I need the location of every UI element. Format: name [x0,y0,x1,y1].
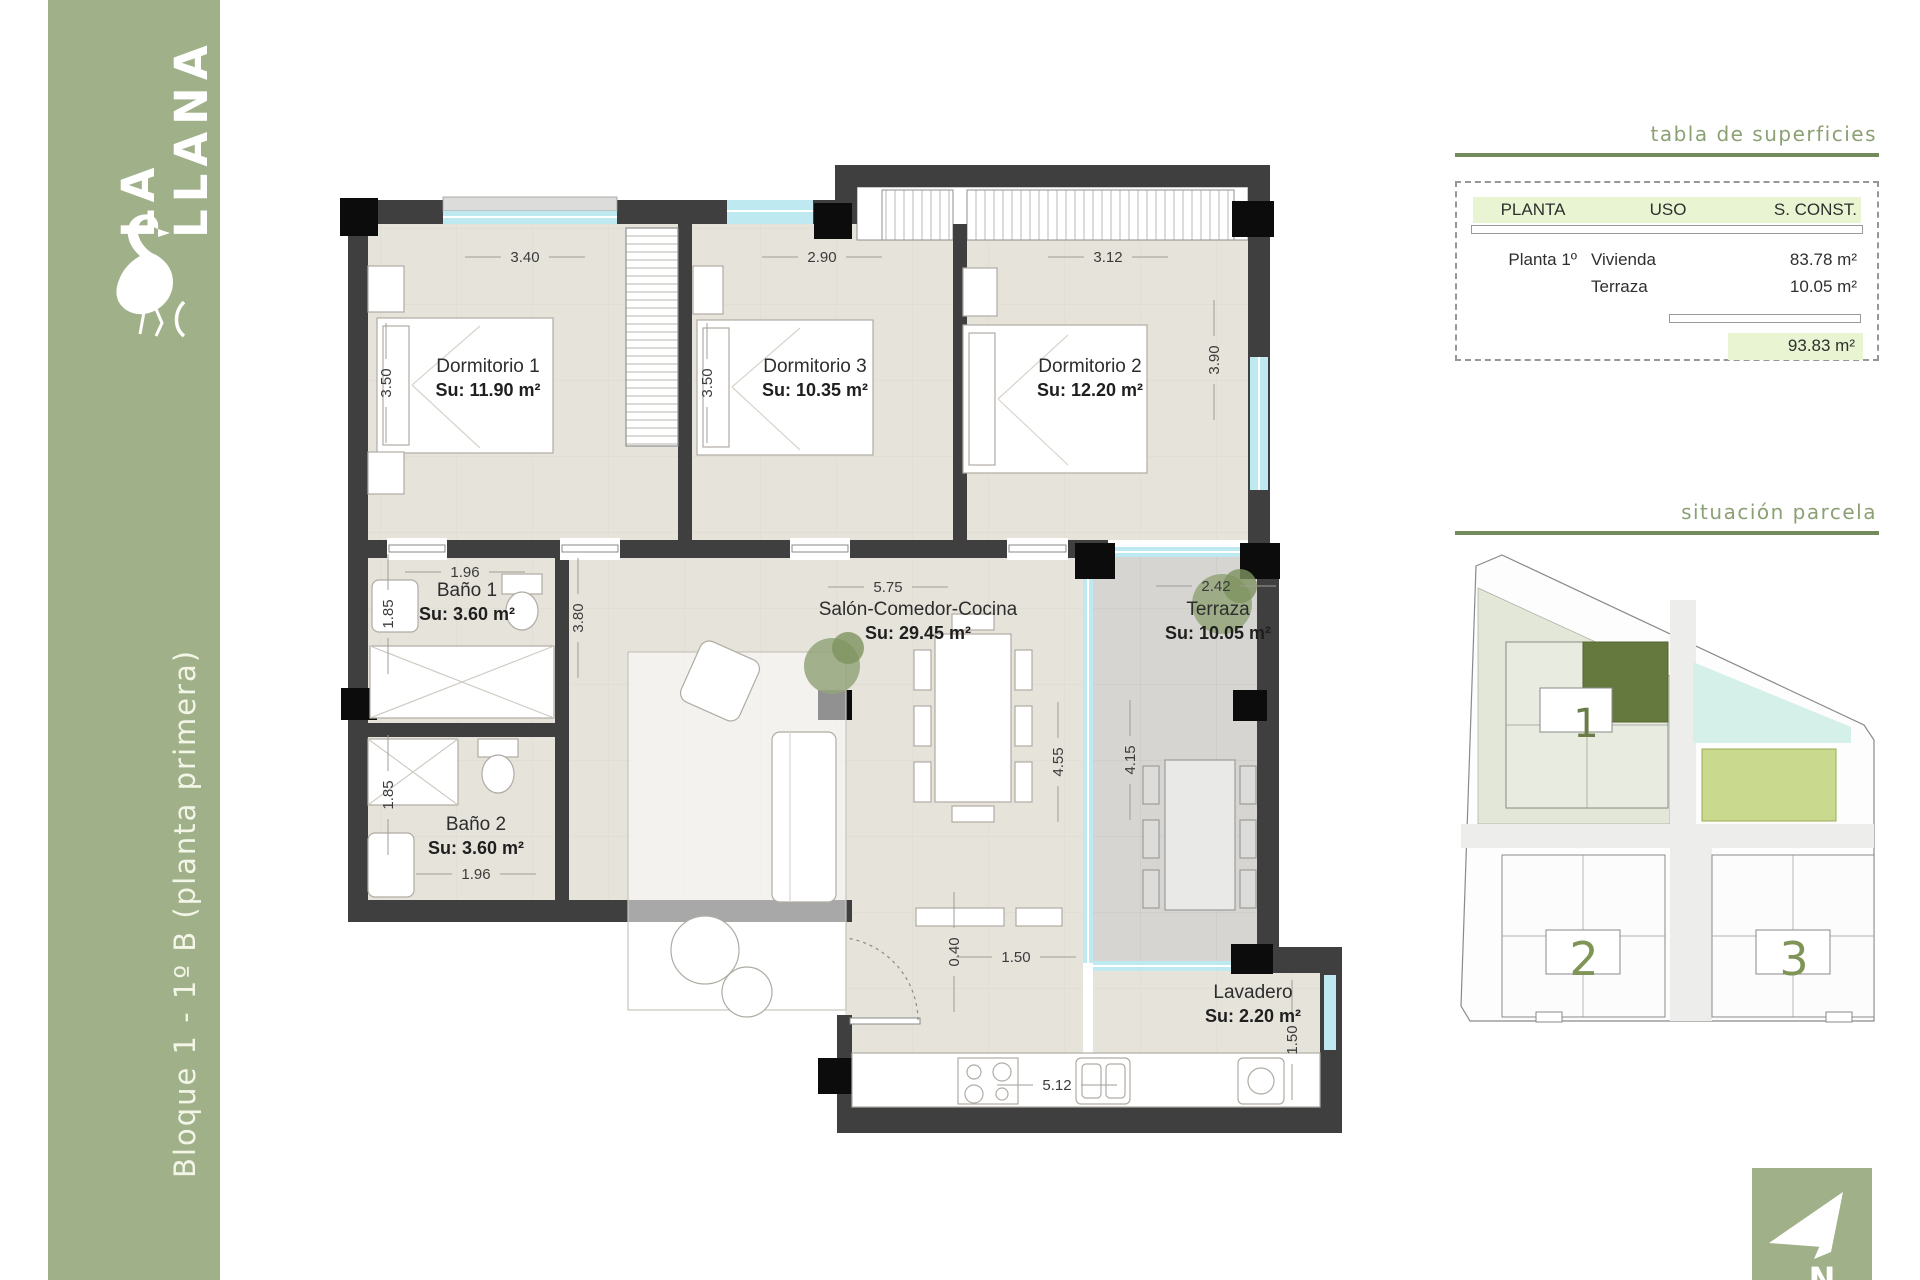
surfaces-row-2: Terraza 10.05 m² [1471,273,1863,300]
dorm3-north-window [882,190,953,240]
header-uso: USO [1593,197,1743,223]
room-label: Baño 2 [446,814,506,835]
svg-text:4.15: 4.15 [1122,745,1139,774]
dining-table [935,634,1011,802]
svg-text:3.40: 3.40 [510,249,539,266]
cell-uso: Terraza [1591,277,1741,297]
svg-text:1.85: 1.85 [380,599,397,628]
room-label: Dormitorio 2 [1038,356,1141,377]
svg-text:3.50: 3.50 [378,368,395,397]
header-planta: PLANTA [1473,197,1593,223]
floor-plan: 3.402.903.123.503.503.901.961.851.851.96… [340,150,1350,1145]
path-horizontal [1461,824,1874,848]
path-center [1674,848,1712,1021]
brand-sidebar: LA LLANA towers Bloque 1 - 1º B (planta … [48,0,220,1280]
header-divider [1471,225,1863,234]
room-label: Baño 1 [437,580,497,601]
site-rule [1455,531,1879,535]
room-area-label: Su: 29.45 m² [865,623,971,643]
compass-box: N [1752,1168,1872,1280]
room-label: Dormitorio 3 [763,356,866,377]
building-3-number: 3 [1779,932,1808,986]
room-area-label: Su: 3.60 m² [428,838,524,858]
flamingo-logo-icon [100,206,196,338]
surfaces-total-row: 93.83 m² [1471,333,1863,360]
dorm1-nightstand [368,266,404,312]
surfaces-panel: tabla de superficies PLANTA USO S. CONST… [1455,122,1879,361]
surfaces-row-1: Planta 1º Vivienda 83.78 m² [1471,246,1863,273]
header-sconst: S. CONST. [1743,197,1861,223]
surfaces-title: tabla de superficies [1455,122,1877,146]
svg-text:2.90: 2.90 [807,249,836,266]
laundry-window [1324,975,1336,1050]
hob [958,1058,1018,1104]
cell-uso: Vivienda [1591,250,1741,270]
svg-text:3.12: 3.12 [1093,249,1122,266]
room-area-label: Su: 11.90 m² [435,380,540,400]
sofa [772,732,836,902]
room-label: Terraza [1186,599,1250,620]
brand-logo: LA LLANA towers [112,0,258,238]
svg-text:1.50: 1.50 [1001,949,1030,966]
dorm1-window [443,197,617,211]
room-area-label: Su: 12.20 m² [1037,380,1143,400]
svg-text:1.50: 1.50 [1284,1025,1301,1054]
svg-text:5.75: 5.75 [873,579,902,596]
building-1-number: 1 [1573,701,1598,747]
svg-text:3.90: 3.90 [1206,345,1223,374]
svg-text:1.85: 1.85 [380,780,397,809]
site-plan: 1 2 3 [1455,548,1880,1028]
bath2-sink [368,833,414,897]
logo-line-llana: LLANA [165,0,218,238]
kitchen-island [916,908,1004,926]
svg-text:0.40: 0.40 [946,937,963,966]
room-label: Lavadero [1213,982,1292,1003]
svg-text:2.42: 2.42 [1201,578,1230,595]
room-area-label: Su: 10.05 m² [1165,623,1271,643]
building-2-number: 2 [1569,932,1598,986]
room-area-label: Su: 3.60 m² [419,604,515,624]
surfaces-header-row: PLANTA USO S. CONST. [1473,197,1861,223]
surfaces-rule [1455,153,1879,157]
dorm2-north-window [967,190,1234,240]
logo-line-la: LA [112,0,165,238]
cell-sconst: 83.78 m² [1741,250,1863,270]
building-3: 3 [1712,855,1874,1022]
surfaces-total: 93.83 m² [1728,333,1863,360]
svg-text:3.50: 3.50 [699,368,716,397]
north-window-zone [857,187,1248,240]
building-2: 2 [1502,855,1665,1022]
svg-text:3.80: 3.80 [570,603,587,632]
washer [1238,1058,1284,1104]
surfaces-table: PLANTA USO S. CONST. Planta 1º Vivienda … [1455,181,1879,361]
cell-planta: Planta 1º [1471,250,1591,270]
bath1-toilet [502,574,542,594]
bath2-toilet [478,739,518,757]
site-title: situación parcela [1455,500,1877,524]
total-divider [1669,314,1861,323]
logo-line-towers: towers [222,0,257,238]
room-area-label: Su: 2.20 m² [1205,1006,1301,1026]
terrace-table [1165,760,1235,910]
dorm1-wardrobe [626,228,678,446]
svg-text:5.12: 5.12 [1042,1077,1071,1094]
svg-text:4.55: 4.55 [1050,747,1067,776]
cell-sconst: 10.05 m² [1741,277,1863,297]
plan-block-title: Bloque 1 - 1º B (planta primera) [168,538,202,1178]
north-label: N [1809,1260,1836,1280]
building-1: 1 [1506,642,1668,808]
svg-text:1.96: 1.96 [450,564,479,581]
svg-text:1.96: 1.96 [461,866,490,883]
room-area-label: Su: 10.35 m² [762,380,868,400]
pool [1702,749,1836,821]
teal-area [1693,662,1851,743]
side-table [671,916,739,984]
room-label: Salón-Comedor-Cocina [819,599,1018,620]
room-label: Dormitorio 1 [436,356,539,377]
site-panel: situación parcela [1455,500,1879,535]
north-arrow-icon: N [1752,1168,1872,1280]
